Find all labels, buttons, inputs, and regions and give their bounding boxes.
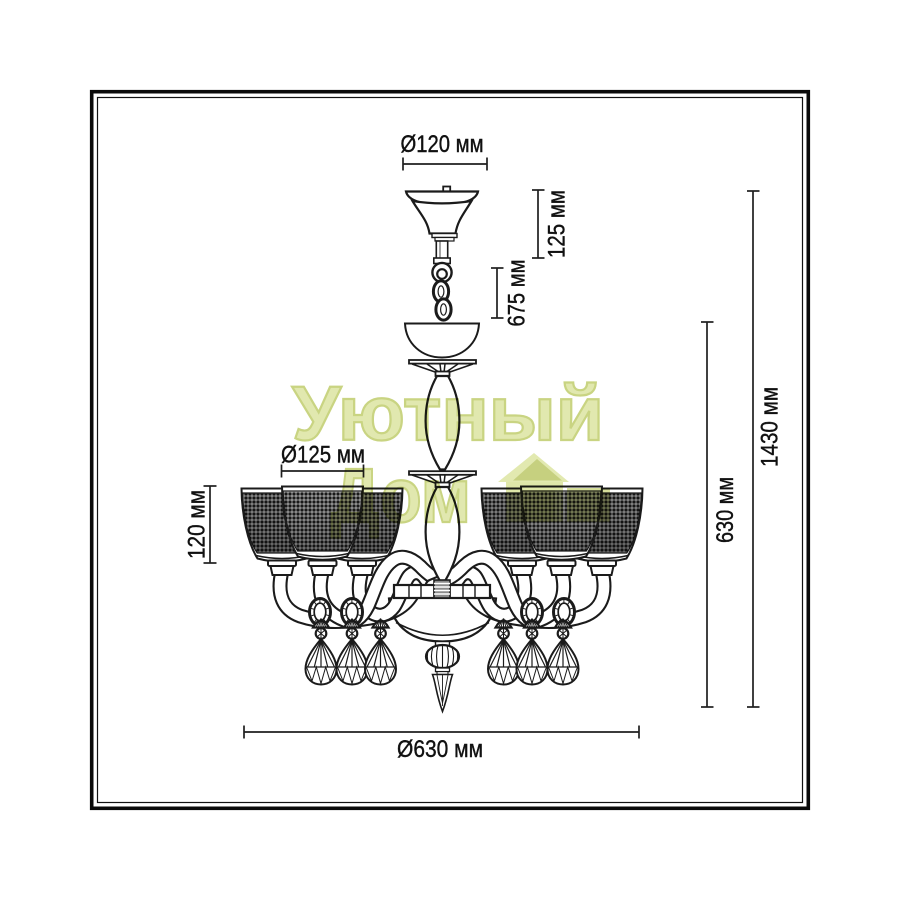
svg-text:Уютный: Уютный — [292, 371, 604, 457]
svg-text:675 мм: 675 мм — [504, 260, 531, 327]
svg-text:Ø630 мм: Ø630 мм — [397, 736, 483, 763]
svg-text:120 мм: 120 мм — [184, 490, 211, 559]
svg-text:1430 мм: 1430 мм — [757, 387, 784, 467]
svg-text:125 мм: 125 мм — [544, 190, 571, 258]
svg-text:Ø120 мм: Ø120 мм — [401, 131, 484, 158]
svg-text:630 мм: 630 мм — [712, 477, 739, 543]
svg-text:Дом: Дом — [331, 453, 471, 539]
